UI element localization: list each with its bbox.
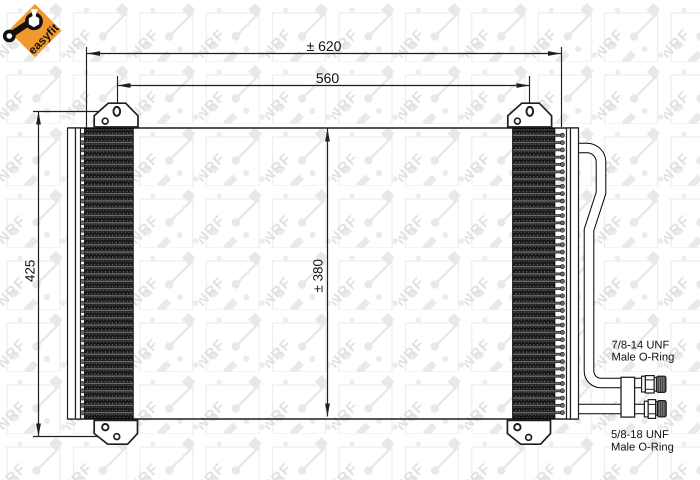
svg-text:560: 560 bbox=[316, 70, 340, 86]
svg-text:425: 425 bbox=[23, 260, 38, 282]
svg-text:5/8-18 UNF: 5/8-18 UNF bbox=[611, 429, 669, 441]
svg-text:Male O-Ring: Male O-Ring bbox=[611, 442, 674, 454]
svg-text:± 380: ± 380 bbox=[310, 259, 325, 292]
svg-text:Male O-Ring: Male O-Ring bbox=[612, 352, 675, 364]
svg-text:7/8-14 UNF: 7/8-14 UNF bbox=[612, 339, 670, 351]
svg-text:± 620: ± 620 bbox=[307, 38, 342, 54]
